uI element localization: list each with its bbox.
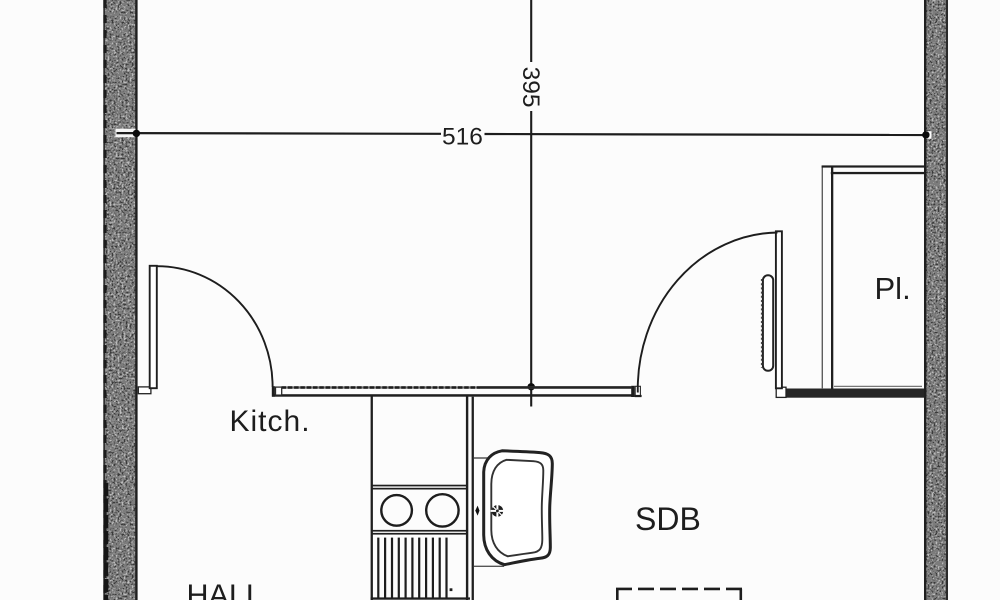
svg-text:395: 395 (517, 67, 544, 108)
svg-text:Pl.: Pl. (875, 271, 911, 306)
svg-text:516: 516 (442, 124, 483, 151)
svg-text:SDB: SDB (635, 501, 701, 537)
svg-text:Kitch.: Kitch. (230, 405, 311, 438)
svg-text:HALL: HALL (187, 579, 263, 600)
